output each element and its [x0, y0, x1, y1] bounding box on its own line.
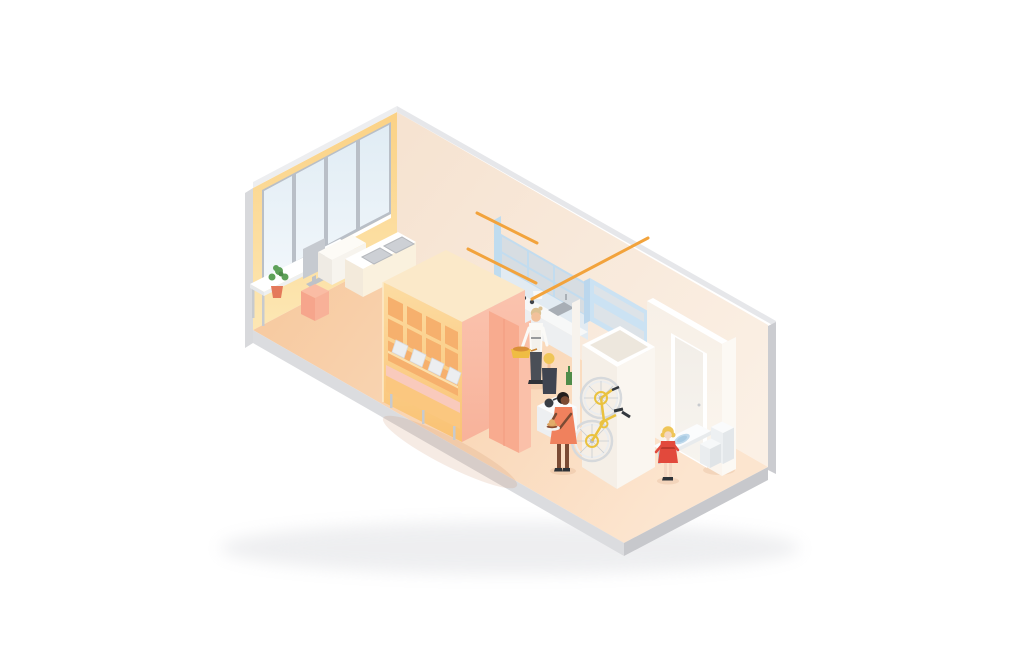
isometric-apartment-illustration — [0, 0, 1024, 662]
chef-shoe — [535, 380, 543, 384]
frying-pan-icon — [545, 399, 554, 408]
chef-shoe — [528, 380, 536, 384]
window-pane-1 — [264, 176, 292, 278]
window-pane-4 — [360, 125, 389, 227]
plant-leaf-icon — [273, 265, 279, 271]
illustration-stage — [0, 0, 1024, 662]
serving-woman-leg — [557, 444, 561, 468]
serving-woman-shoe — [554, 468, 562, 472]
serving-woman-leg — [565, 444, 569, 468]
pot-food — [513, 347, 529, 352]
plant-leaf-dark-icon — [279, 272, 284, 277]
closet-side-wall — [617, 347, 655, 489]
girl-leg — [664, 463, 667, 477]
chef-pants — [530, 352, 542, 380]
serving-woman-face — [561, 396, 570, 405]
door-handle-icon — [698, 404, 701, 407]
chef-face — [531, 312, 541, 322]
slab-right-edge — [768, 322, 776, 474]
girl-face — [664, 431, 672, 439]
bike-seat — [614, 409, 623, 411]
green-bottle — [566, 372, 572, 385]
girl-leg — [669, 463, 672, 477]
woman-hair — [544, 353, 555, 364]
girl-shoe — [667, 477, 673, 481]
bottle-neck — [568, 366, 570, 372]
plant-leaf-icon — [269, 274, 276, 281]
woman-top — [542, 368, 557, 394]
bench-leg — [422, 410, 425, 424]
plant-pot — [271, 286, 283, 298]
cistern-side — [723, 428, 734, 465]
fridge-side — [584, 278, 590, 324]
serving-woman-shoe — [562, 468, 570, 472]
desk-leg-front-left — [262, 295, 265, 326]
bench-leg — [390, 394, 393, 408]
slab-left-edge — [245, 188, 253, 348]
bench-leg — [453, 426, 456, 440]
chef-bun — [539, 307, 543, 311]
girl-shoe — [662, 477, 668, 481]
burger-bun-top — [549, 419, 555, 425]
ground-shadow — [220, 522, 800, 574]
desk-leg-back-left — [252, 287, 255, 318]
window-pane-3 — [328, 142, 356, 244]
